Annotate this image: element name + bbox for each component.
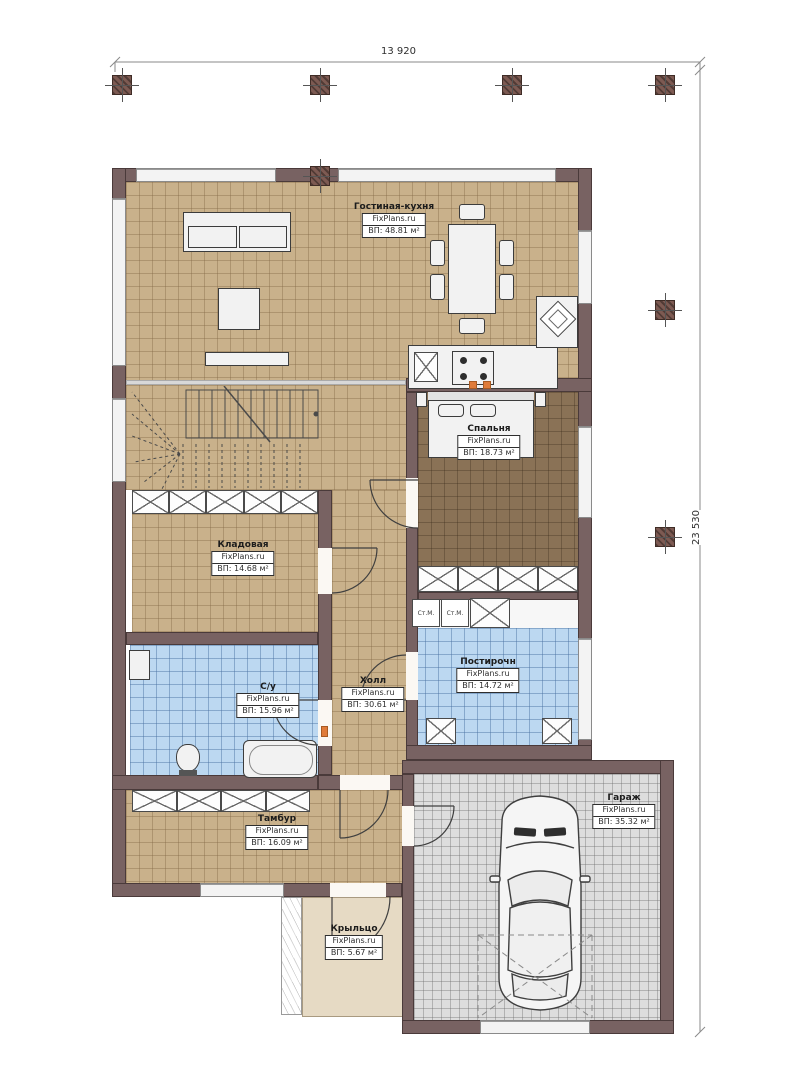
burner (460, 357, 467, 364)
toilet (176, 744, 200, 772)
door-opening (330, 883, 386, 897)
chair (459, 318, 485, 334)
dimension-top-label: 13 920 (378, 46, 419, 57)
pillow (470, 404, 496, 417)
radiator-marker (469, 381, 477, 389)
column-marker (310, 75, 330, 95)
opening-beam (126, 380, 406, 385)
room-area: ВП: 48.81 м² (363, 226, 424, 237)
wardrobe-box (132, 790, 177, 812)
bathtub-basin (249, 745, 313, 775)
brand-watermark: FixPlans.ru (457, 669, 518, 681)
wardrobe-box (244, 490, 281, 514)
wardrobe-box (418, 566, 458, 592)
wardrobe-box (132, 490, 169, 514)
wall (126, 632, 318, 645)
brand-watermark: FixPlans.ru (326, 936, 382, 948)
room-label-living-kitchen: Гостиная-кухня FixPlans.ruВП: 48.81 м² (354, 202, 434, 238)
brand-watermark: FixPlans.ru (237, 694, 298, 706)
room-name: Спальня (457, 424, 520, 434)
wardrobe-box (498, 566, 538, 592)
stair-hall-floor (126, 385, 406, 490)
column-marker (502, 75, 522, 95)
chair (430, 240, 445, 266)
washing-machine: Ст.М. (412, 599, 440, 627)
burner (480, 357, 487, 364)
cabinet-box (426, 718, 456, 744)
wardrobe-box (266, 790, 311, 812)
bed-headboard (428, 392, 534, 401)
kitchen-sink (414, 352, 438, 382)
brand-watermark: FixPlans.ru (342, 688, 403, 700)
pillow (438, 404, 464, 417)
room-area: ВП: 35.32 м² (593, 817, 654, 828)
column-marker (655, 527, 675, 547)
bathroom-sink (129, 650, 150, 680)
dining-table (448, 224, 496, 314)
wardrobe-box (458, 566, 498, 592)
wardrobe-box (281, 490, 318, 514)
chair (499, 274, 514, 300)
column-marker (310, 166, 330, 186)
room-label-tambour: Тамбур FixPlans.ruВП: 16.09 м² (245, 814, 308, 850)
coffee-table (218, 288, 260, 330)
burner (460, 373, 467, 380)
room-label-laundry: Постирочн FixPlans.ruВП: 14.72 м² (456, 657, 519, 693)
room-area: ВП: 14.68 м² (212, 564, 273, 575)
burner (480, 373, 487, 380)
wardrobe-box (169, 490, 206, 514)
cabinet-box (542, 718, 572, 744)
room-label-bathroom: С/у FixPlans.ruВП: 15.96 м² (236, 682, 299, 718)
door-opening (406, 478, 418, 528)
tv-stand (205, 352, 289, 366)
sofa-cushion (239, 226, 287, 248)
room-name: Крыльцо (325, 924, 383, 934)
window (112, 398, 126, 482)
window (136, 168, 276, 182)
wardrobe-row (132, 790, 310, 812)
column-marker (112, 75, 132, 95)
chair (499, 240, 514, 266)
porch-steps-hatch (281, 897, 302, 1015)
wardrobe-row (418, 566, 578, 592)
room-name: Гостиная-кухня (354, 202, 434, 212)
corner-sink-basin (548, 309, 568, 329)
room-name: С/у (236, 682, 299, 692)
room-label-hall: Холл FixPlans.ruВП: 30.61 м² (341, 676, 404, 712)
column-marker (655, 75, 675, 95)
room-name: Кладовая (211, 540, 274, 550)
brand-watermark: FixPlans.ru (246, 826, 307, 838)
room-name: Холл (341, 676, 404, 686)
window (578, 230, 592, 304)
wall (406, 392, 418, 760)
chair (430, 274, 445, 300)
wardrobe-box (206, 490, 243, 514)
column-marker (655, 300, 675, 320)
room-label-porch: Крыльцо FixPlans.ruВП: 5.67 м² (325, 924, 383, 960)
room-area: ВП: 15.96 м² (237, 706, 298, 717)
room-area: ВП: 14.72 м² (457, 681, 518, 692)
room-area: ВП: 30.61 м² (342, 700, 403, 711)
stove (452, 351, 494, 385)
radiator-marker (321, 726, 328, 737)
wardrobe-row (132, 490, 318, 514)
washing-machine: Ст.М. (441, 599, 469, 627)
door-opening (318, 548, 332, 594)
brand-watermark: FixPlans.ru (212, 552, 273, 564)
room-label-garage: Гараж FixPlans.ruВП: 35.32 м² (592, 793, 655, 829)
door-opening (318, 700, 332, 746)
hall-floor (332, 490, 406, 775)
garage-door (480, 1020, 590, 1034)
wall (660, 760, 674, 1034)
wardrobe-box (538, 566, 578, 592)
toilet-base (179, 770, 197, 776)
brand-watermark: FixPlans.ru (458, 436, 519, 448)
nightstand (416, 392, 427, 407)
wardrobe-box (221, 790, 266, 812)
room-name: Тамбур (245, 814, 308, 824)
wardrobe-box (177, 790, 222, 812)
room-name: Гараж (592, 793, 655, 803)
nightstand (535, 392, 546, 407)
room-area: ВП: 5.67 м² (326, 948, 382, 959)
cabinet-box (470, 598, 510, 628)
floor-plan: 13 920 23 530 (0, 0, 792, 1080)
door-opening (340, 775, 390, 790)
brand-watermark: FixPlans.ru (363, 214, 424, 226)
wall (402, 760, 674, 774)
sofa-cushion (188, 226, 237, 248)
window (112, 198, 126, 366)
room-area: ВП: 18.73 м² (458, 448, 519, 459)
window (200, 883, 284, 897)
window (578, 426, 592, 518)
room-label-storage: Кладовая FixPlans.ruВП: 14.68 м² (211, 540, 274, 576)
room-label-bedroom: Спальня FixPlans.ruВП: 18.73 м² (457, 424, 520, 460)
door-opening (406, 652, 418, 700)
door-opening (402, 806, 414, 846)
wall (406, 745, 592, 760)
window (338, 168, 556, 182)
brand-watermark: FixPlans.ru (593, 805, 654, 817)
room-area: ВП: 16.09 м² (246, 838, 307, 849)
radiator-marker (483, 381, 491, 389)
window (578, 638, 592, 740)
dimension-right-label: 23 530 (688, 510, 705, 545)
chair (459, 204, 485, 220)
room-name: Постирочн (456, 657, 519, 667)
